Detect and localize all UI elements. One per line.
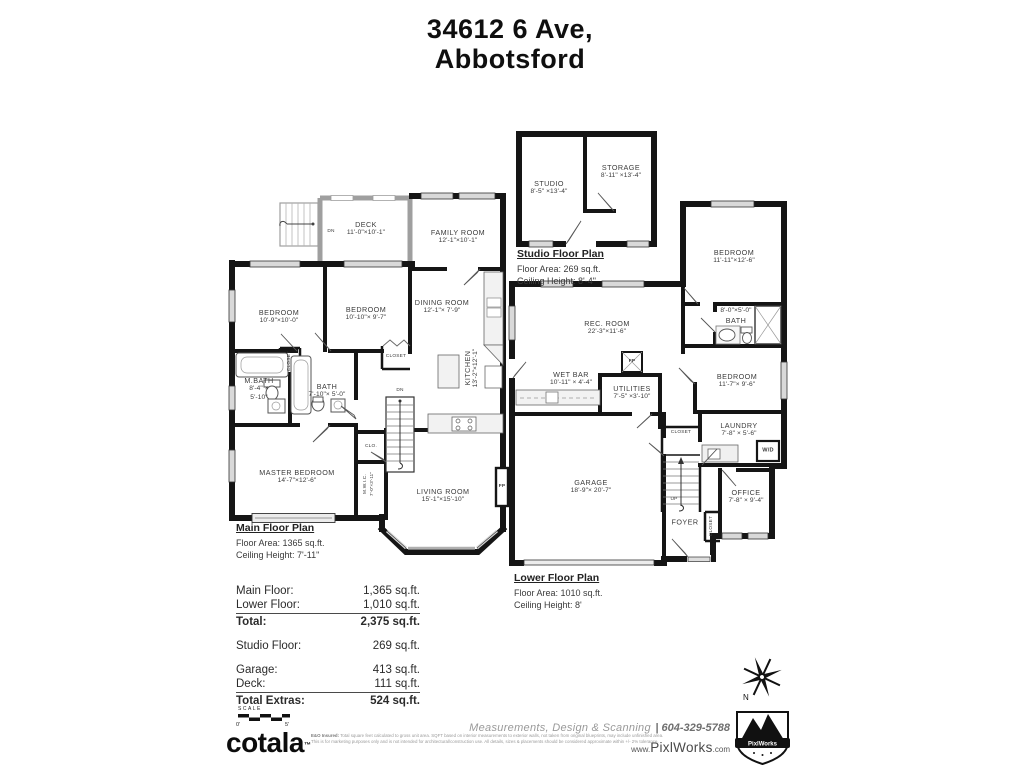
room-label-rec-room: REC. ROOM 22'-3"×11'-6" bbox=[584, 319, 630, 337]
summary-value: 269 sq.ft. bbox=[373, 639, 420, 653]
area-summary-table: Main Floor: 1,365 sq.ft. Lower Floor: 1,… bbox=[236, 584, 420, 708]
front-door-sill bbox=[688, 557, 710, 562]
summary-label: Garage: bbox=[236, 663, 278, 677]
scale-bar bbox=[238, 714, 290, 721]
room-name: LIVING ROOM bbox=[417, 487, 470, 496]
room-name: M.BATH bbox=[240, 376, 278, 385]
main-stairs bbox=[386, 397, 414, 472]
room-name: CLOSET bbox=[671, 430, 691, 436]
caption-ceiling: Ceiling Height: 7'-11" bbox=[236, 549, 325, 561]
room-dims: 12'-1"×10'-1" bbox=[431, 237, 485, 246]
room-label-wet-bar: WET BAR 10'-11" × 4'-4" bbox=[550, 370, 592, 388]
tagline-text: Measurements, Design & Scanning bbox=[469, 722, 651, 734]
caption-title: Main Floor Plan bbox=[236, 522, 325, 534]
summary-row: Studio Floor: 269 sq.ft. bbox=[236, 639, 420, 653]
room-label-foyer: FOYER bbox=[671, 517, 698, 526]
room-name: STORAGE bbox=[601, 163, 641, 172]
summary-row: Garage: 413 sq.ft. bbox=[236, 663, 420, 677]
room-label-fp-main: FP bbox=[499, 484, 506, 490]
room-name: KITCHEN bbox=[463, 349, 472, 388]
room-dims: 10'-10"× 9'-7" bbox=[346, 314, 387, 323]
room-label-dn-stairs: DN bbox=[396, 388, 403, 394]
caption-title: Lower Floor Plan bbox=[514, 572, 603, 584]
summary-value: 111 sq.ft. bbox=[374, 677, 420, 691]
room-dims: 14'-7"×12'-6" bbox=[259, 477, 334, 486]
summary-divider bbox=[236, 692, 420, 693]
room-name: CLOSET bbox=[386, 354, 406, 360]
website-line: www.PixlWorks.com bbox=[420, 739, 730, 757]
room-dims: 15'-1"×15'-10" bbox=[417, 496, 470, 505]
lower-floor-caption: Lower Floor Plan Floor Area: 1010 sq.ft.… bbox=[514, 572, 603, 611]
room-label-family-room: FAMILY ROOM 12'-1"×10'-1" bbox=[431, 228, 485, 246]
room-dims: 10'-9"×10'-0" bbox=[259, 317, 299, 326]
room-dims: 13'-2"×12'-1" bbox=[472, 349, 481, 388]
room-name: DINING ROOM bbox=[415, 298, 469, 307]
room-label-deck: DECK 11'-0"×10'-1" bbox=[347, 220, 385, 238]
summary-spacer bbox=[236, 653, 420, 663]
room-dims: 22'-3"×11'-6" bbox=[584, 328, 630, 337]
room-dims: 11'-11"×12'-6" bbox=[713, 257, 755, 266]
room-label-dn-deck: DN bbox=[327, 229, 334, 235]
room-name: LAUNDRY bbox=[720, 421, 757, 430]
caption-area: Floor Area: 1010 sq.ft. bbox=[514, 587, 603, 599]
room-label-kitchen: KITCHEN 13'-2"×12'-1" bbox=[463, 349, 481, 388]
trademark-symbol: ™ bbox=[304, 742, 311, 749]
caption-area: Floor Area: 269 sq.ft. bbox=[517, 263, 604, 275]
room-label-living-room: LIVING ROOM 15'-1"×15'-10" bbox=[417, 487, 470, 505]
room-label-closet-foyer: CLOSET bbox=[709, 516, 715, 536]
room-label-master-bedroom: MASTER BEDROOM 14'-7"×12'-6" bbox=[259, 468, 334, 486]
room-name: BEDROOM bbox=[717, 372, 757, 381]
room-label-lower-bedroom-2: BEDROOM 11'-7"× 9'-6" bbox=[717, 372, 757, 390]
studio-floor-caption: Studio Floor Plan Floor Area: 269 sq.ft.… bbox=[517, 248, 604, 287]
summary-row: Lower Floor: 1,010 sq.ft. bbox=[236, 598, 420, 612]
summary-row-total-extras: Total Extras: 524 sq.ft. bbox=[236, 694, 420, 708]
room-label-master-bath: M.BATH 8'-4" × 5'-10" bbox=[240, 376, 278, 402]
lower-stairs bbox=[663, 457, 699, 511]
summary-label: Total: bbox=[236, 615, 266, 629]
room-name: W/D bbox=[762, 447, 773, 454]
room-name: CLOSET bbox=[709, 516, 715, 536]
room-label-bedroom-1: BEDROOM 10'-9"×10'-0" bbox=[259, 308, 299, 326]
summary-spacer bbox=[236, 629, 420, 639]
disclaimer-lead: E&O Insured: bbox=[311, 733, 339, 738]
room-name: DN bbox=[396, 388, 403, 394]
pixlworks-logo: PixlWorks bbox=[735, 712, 790, 764]
summary-row: Main Floor: 1,365 sq.ft. bbox=[236, 584, 420, 598]
summary-row: Deck: 111 sq.ft. bbox=[236, 677, 420, 691]
room-name: REC. ROOM bbox=[584, 319, 630, 328]
summary-divider bbox=[236, 613, 420, 614]
title-city: Abbotsford bbox=[340, 44, 680, 74]
website-www: www. bbox=[631, 745, 650, 754]
room-name: FAMILY ROOM bbox=[431, 228, 485, 237]
caption-title: Studio Floor Plan bbox=[517, 248, 604, 260]
room-name: DN bbox=[327, 229, 334, 235]
room-name: STUDIO bbox=[531, 179, 568, 188]
room-dims: 10'-11" × 4'-4" bbox=[550, 379, 592, 388]
main-floor-caption: Main Floor Plan Floor Area: 1365 sq.ft. … bbox=[236, 522, 325, 561]
room-name: CLOSET bbox=[287, 351, 293, 371]
room-dims: 8'-0"×5'-0" bbox=[720, 307, 751, 316]
room-label-utilities: UTILITIES 7'-5" ×3'-10" bbox=[613, 384, 651, 402]
room-label-lower-bath: 8'-0"×5'-0" BATH bbox=[720, 307, 751, 325]
room-label-dining-room: DINING ROOM 12'-1"× 7'-9" bbox=[415, 298, 469, 316]
room-name: CLO. bbox=[365, 444, 377, 450]
summary-label: Lower Floor: bbox=[236, 598, 300, 612]
room-label-up: UP bbox=[670, 497, 677, 503]
room-name: UP bbox=[670, 497, 677, 503]
room-label-lower-bedroom-1: BEDROOM 11'-11"×12'-6" bbox=[713, 248, 755, 266]
room-label-closet-stairs: CLOSET bbox=[671, 430, 691, 436]
summary-value: 1,365 sq.ft. bbox=[363, 584, 420, 598]
room-name: UTILITIES bbox=[613, 384, 651, 393]
summary-label: Main Floor: bbox=[236, 584, 294, 598]
summary-value: 2,375 sq.ft. bbox=[361, 615, 420, 629]
room-label-closet-dining: CLOSET bbox=[386, 354, 406, 360]
room-dims: 18'-9"× 20'-7" bbox=[571, 487, 612, 496]
room-name: WET BAR bbox=[550, 370, 592, 379]
room-label-closet-hall: CLOSET bbox=[287, 351, 293, 371]
room-label-garage: GARAGE 18'-9"× 20'-7" bbox=[571, 478, 612, 496]
compass-north-label: N bbox=[743, 693, 749, 702]
title-address: 34612 6 Ave, bbox=[340, 14, 680, 44]
room-name: GARAGE bbox=[571, 478, 612, 487]
room-name: DECK bbox=[347, 220, 385, 229]
room-dims: 11'-7"× 9'-6" bbox=[717, 381, 757, 390]
room-dims: 7'-8" × 5'-6" bbox=[720, 430, 757, 439]
room-name: FP bbox=[629, 359, 636, 365]
room-label-studio: STUDIO 8'-5" ×13'-4" bbox=[531, 179, 568, 197]
room-name: OFFICE bbox=[728, 488, 763, 497]
floorplan-page: N PixlWorks 34612 6 Ave, Abbotsford DECK… bbox=[0, 0, 1024, 768]
website-com: .com bbox=[713, 745, 730, 754]
room-dims: 7'-8" × 9'-4" bbox=[728, 497, 763, 506]
cotala-logo: cotala™ bbox=[226, 727, 311, 759]
summary-label: Deck: bbox=[236, 677, 265, 691]
studio-doors bbox=[566, 193, 614, 244]
phone-number: | 604-329-5788 bbox=[655, 722, 730, 734]
room-name: FOYER bbox=[671, 517, 698, 526]
room-name: BEDROOM bbox=[346, 305, 387, 314]
caption-ceiling: Ceiling Height: 8' bbox=[514, 599, 603, 611]
room-name: BATH bbox=[720, 316, 751, 325]
room-label-clo: CLO. bbox=[365, 444, 377, 450]
room-dims: 7'-10"× 5'-0" bbox=[309, 391, 346, 400]
footer-contact: Measurements, Design & Scanning | 604-32… bbox=[420, 718, 730, 757]
room-dims: 8'-5" ×13'-4" bbox=[531, 188, 568, 197]
tagline-line: Measurements, Design & Scanning | 604-32… bbox=[420, 718, 730, 736]
garage-door bbox=[524, 560, 654, 565]
room-name: BEDROOM bbox=[259, 308, 299, 317]
room-name: MASTER BEDROOM bbox=[259, 468, 334, 477]
room-label-storage: STORAGE 8'-11" ×13'-4" bbox=[601, 163, 641, 181]
room-name: FP bbox=[499, 484, 506, 490]
room-name: BEDROOM bbox=[713, 248, 755, 257]
room-dims: 12'-1"× 7'-9" bbox=[415, 307, 469, 316]
summary-value: 524 sq.ft. bbox=[370, 694, 420, 708]
summary-row-total: Total: 2,375 sq.ft. bbox=[236, 615, 420, 629]
pixlworks-logo-text: PixlWorks bbox=[748, 742, 778, 748]
room-label-washer-dryer: W/D bbox=[762, 447, 773, 454]
cotala-logo-text: cotala bbox=[226, 727, 304, 758]
room-dims: 8'-11" ×13'-4" bbox=[601, 172, 641, 181]
caption-area: Floor Area: 1365 sq.ft. bbox=[236, 537, 325, 549]
summary-label: Studio Floor: bbox=[236, 639, 301, 653]
page-title: 34612 6 Ave, Abbotsford bbox=[340, 14, 680, 74]
summary-value: 413 sq.ft. bbox=[373, 663, 420, 677]
room-label-fp-lower: FP bbox=[629, 359, 636, 365]
room-name: BATH bbox=[309, 382, 346, 391]
floorplan-drawing: N PixlWorks bbox=[0, 0, 1024, 768]
room-label-mwic: M.W.I.C. 7'-0"×3'-11" bbox=[363, 472, 375, 496]
room-label-bath: BATH 7'-10"× 5'-0" bbox=[309, 382, 346, 400]
room-label-bedroom-2: BEDROOM 10'-10"× 9'-7" bbox=[346, 305, 387, 323]
room-dims: 8'-4" × 5'-10" bbox=[240, 385, 278, 402]
room-label-office: OFFICE 7'-8" × 9'-4" bbox=[728, 488, 763, 506]
room-dims: 7'-0"×3'-11" bbox=[369, 472, 375, 496]
room-label-laundry: LAUNDRY 7'-8" × 5'-6" bbox=[720, 421, 757, 439]
room-dims: 7'-5" ×3'-10" bbox=[613, 393, 651, 402]
room-dims: 11'-0"×10'-1" bbox=[347, 229, 385, 238]
website-name: PixlWorks bbox=[650, 740, 712, 755]
caption-ceiling: Ceiling Height: 8'-4" bbox=[517, 275, 604, 287]
scale-label: SCALE bbox=[238, 706, 262, 712]
summary-value: 1,010 sq.ft. bbox=[363, 598, 420, 612]
